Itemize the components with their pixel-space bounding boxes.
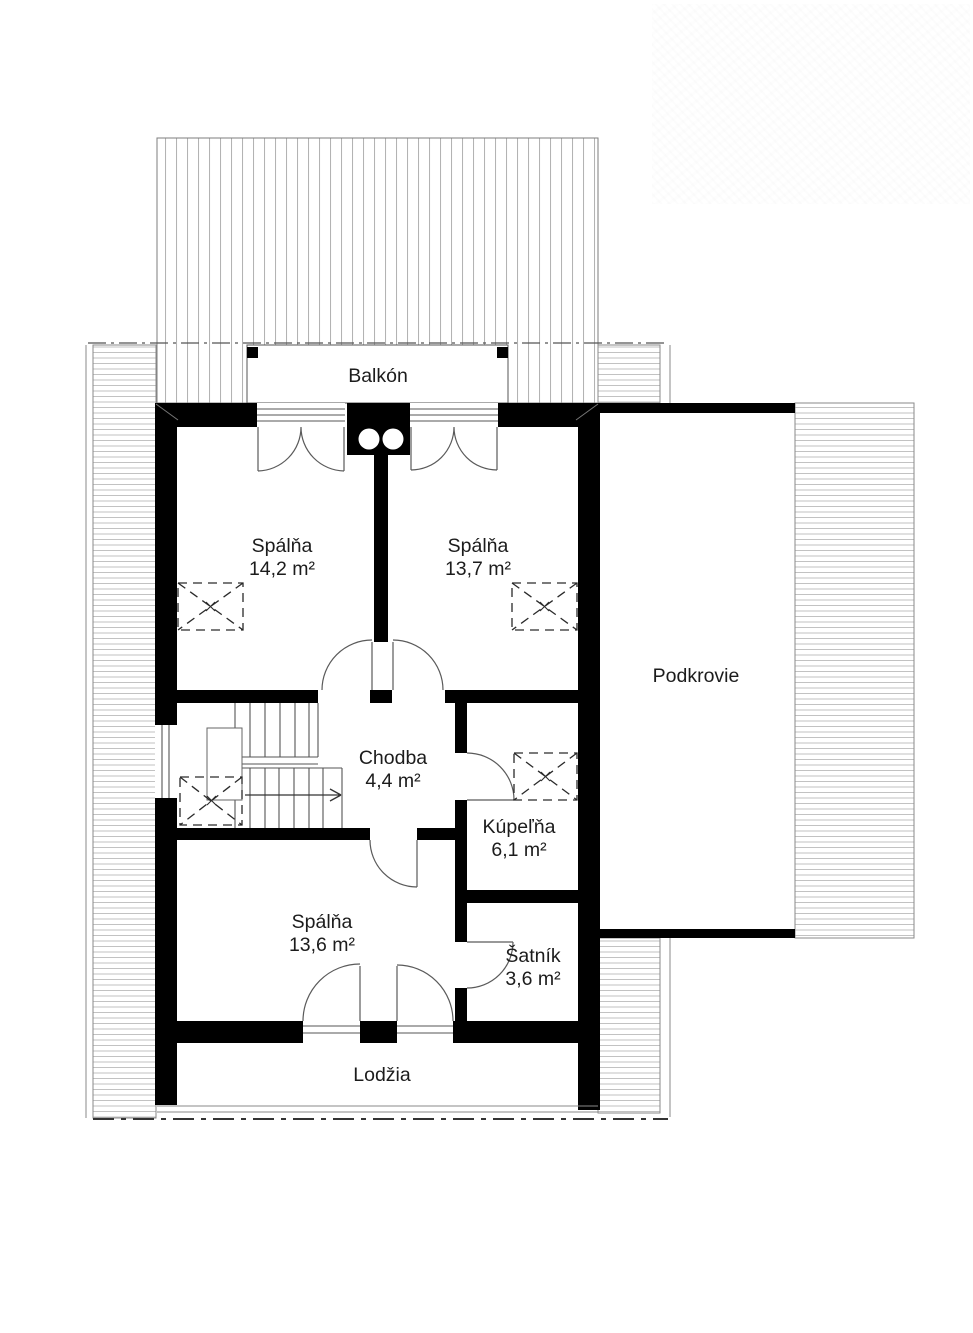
skylight-bedroom1 (178, 583, 243, 630)
label-lodzia: Lodžia (353, 1064, 411, 1086)
area-spalna1: 14,2 m² (249, 558, 316, 580)
label-chodba: Chodba (359, 747, 427, 769)
chimney-flue-right (383, 429, 404, 450)
balcony-post-right (497, 347, 508, 358)
roof-areas (86, 138, 914, 1119)
stair-treads-lower (250, 768, 323, 828)
door-bathroom (467, 753, 514, 800)
stair-direction-arrow (245, 789, 341, 801)
roof-right-bottom (598, 938, 660, 1113)
loggia-edge-lines (157, 1106, 598, 1112)
label-spalna3: Spálňa (292, 911, 353, 933)
door-loggia-left (303, 964, 360, 1021)
door-bedroom1 (322, 640, 372, 690)
chimney-block (347, 403, 410, 455)
balcony-post-left (247, 347, 258, 358)
floor-plan-page: Balkón Spálňa 14,2 m² Spálňa 13,7 m² Pod… (0, 0, 973, 1333)
door-bedroom2 (393, 640, 443, 690)
stair-treads-upper (250, 703, 309, 757)
label-spalna1: Spálňa (252, 535, 313, 557)
area-satnik: 3,6 m² (505, 968, 561, 990)
label-spalna2: Spálňa (448, 535, 509, 557)
stair-break-line (235, 757, 318, 764)
podkrovie-bottom-wall (598, 929, 795, 938)
door-balcony-left (258, 427, 344, 471)
skylight-bathroom (514, 753, 577, 800)
podkrovie-top-wall (598, 403, 795, 413)
door-balcony-right (411, 427, 497, 470)
label-satnik: Šatník (505, 944, 561, 967)
staircase (207, 703, 342, 828)
chimney-flue-left (359, 429, 380, 450)
area-spalna2: 13,7 m² (445, 558, 512, 580)
roof-right-strip (795, 403, 914, 938)
area-kupelna: 6,1 m² (491, 839, 547, 861)
door-bedroom3 (370, 840, 417, 887)
area-spalna3: 13,6 m² (289, 934, 356, 956)
label-kupelna: Kúpeľňa (483, 816, 556, 838)
stair-void (207, 728, 242, 800)
door-loggia-right (397, 965, 453, 1021)
label-balkon: Balkón (348, 365, 408, 387)
floor-plan-drawing: Balkón Spálňa 14,2 m² Spálňa 13,7 m² Pod… (0, 0, 973, 1333)
label-podkrovie: Podkrovie (653, 665, 740, 687)
roof-left-strip (93, 345, 156, 1118)
area-chodba: 4,4 m² (365, 770, 421, 792)
skylight-bedroom2 (512, 583, 577, 630)
roof-right-top (598, 345, 660, 403)
bedroom-divider-wall (374, 455, 388, 642)
